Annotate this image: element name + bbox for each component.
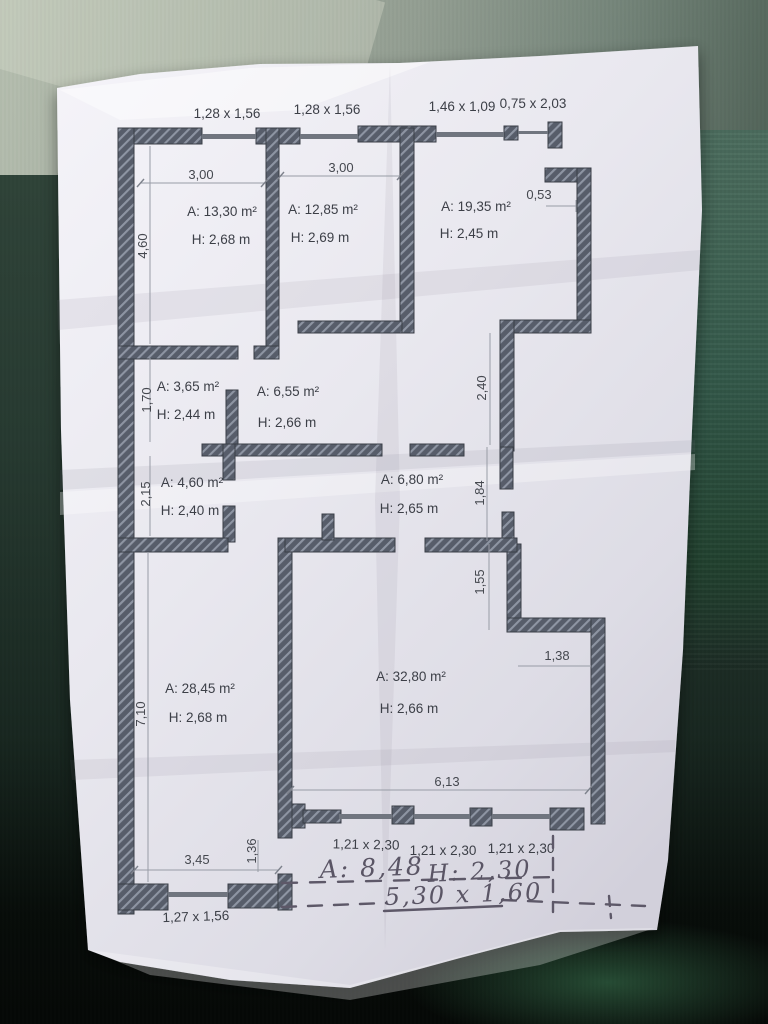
bottom-left-window-label: 1,27 x 1,56 [162,908,229,925]
room3-height-label: H: 2,45 m [440,226,499,241]
room9-height-label: H: 2,66 m [380,701,439,716]
dim-width-room2: 3,00 [328,160,353,175]
dim-right-1: 2,40 [474,375,489,400]
handwritten-size: 5,30 x 1,60 [384,878,543,911]
dim-bottom-width: 6,13 [434,774,459,789]
handwritten-area: A: 8,48 [317,851,424,884]
room8-area-label: A: 28,45 m² [165,681,235,696]
dim-left-4: 7,10 [133,701,148,726]
wc-height-label: H: 2,40 m [161,503,220,518]
dim-step: 1,38 [544,648,569,663]
hall3-area-label: A: 6,80 m² [381,472,444,487]
room2-height-label: H: 2,69 m [291,230,350,245]
dim-right-2: 1,84 [472,480,487,505]
bottom-window-label-3: 1,21 x 2,30 [488,841,555,856]
room8-height-label: H: 2,68 m [169,710,228,725]
hall3-height-label: H: 2,65 m [380,501,439,516]
hall1-height-label: H: 2,44 m [157,407,216,422]
dim-notch: 0,53 [526,187,551,202]
dim-right-3: 1,55 [472,569,487,594]
top-window-label-2: 1,28 x 1,56 [294,102,361,117]
room3-area-label: A: 19,35 m² [441,199,511,214]
hall2-area-label: A: 6,55 m² [257,384,320,399]
wc-area-label: A: 4,60 m² [161,475,224,490]
dim-left-2: 1,70 [139,387,154,412]
room1-area-label: A: 13,30 m² [187,204,257,219]
dim-left-1: 4,60 [135,233,150,258]
photo-of-floor-plan: 1,28 x 1,56 1,28 x 1,56 1,46 x 1,09 0,75… [0,0,768,1024]
dim-left-3: 2,15 [138,481,153,506]
top-window-label-3: 1,46 x 1,09 [429,99,496,114]
room1-height-label: H: 2,68 m [192,232,251,247]
hall2-height-label: H: 2,66 m [258,415,317,430]
bottom-window-label-1: 1,21 x 2,30 [333,836,400,852]
top-window-label-4: 0,75 x 2,03 [500,96,567,111]
dim-width-room1: 3,00 [188,167,213,182]
floor-plan-svg: 1,28 x 1,56 1,28 x 1,56 1,46 x 1,09 0,75… [0,0,768,1024]
dim-door: 1,36 [244,838,259,863]
room9-area-label: A: 32,80 m² [376,669,446,684]
room2-area-label: A: 12,85 m² [288,202,358,217]
dim-bottom-left-width: 3,45 [184,852,209,867]
top-window-label-1: 1,28 x 1,56 [194,106,261,121]
hall1-area-label: A: 3,65 m² [157,379,220,394]
